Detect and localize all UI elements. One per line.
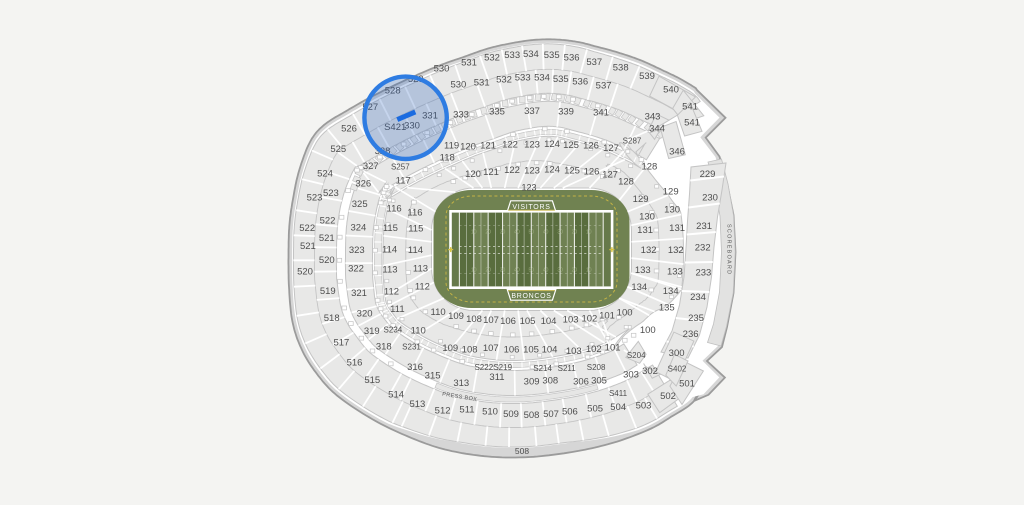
svg-text:522: 522 [299, 223, 315, 234]
svg-text:316: 316 [407, 362, 423, 373]
svg-text:300: 300 [669, 348, 685, 359]
svg-text:103: 103 [563, 315, 579, 326]
svg-text:20: 20 [485, 230, 491, 236]
svg-text:120: 120 [465, 169, 481, 180]
svg-text:515: 515 [364, 375, 380, 386]
svg-text:135: 135 [659, 302, 675, 313]
svg-text:534: 534 [523, 49, 539, 60]
svg-text:S411: S411 [609, 389, 628, 398]
svg-text:530: 530 [450, 79, 466, 90]
svg-text:121: 121 [480, 140, 496, 151]
svg-text:123: 123 [524, 165, 540, 176]
svg-text:106: 106 [504, 344, 520, 355]
svg-text:20: 20 [572, 268, 578, 274]
svg-text:131: 131 [637, 225, 653, 236]
svg-text:103: 103 [566, 346, 582, 357]
svg-text:133: 133 [667, 267, 683, 278]
svg-text:10: 10 [586, 268, 592, 274]
svg-text:521: 521 [300, 241, 316, 252]
svg-text:S402: S402 [668, 364, 687, 373]
svg-text:302: 302 [642, 366, 658, 377]
svg-text:536: 536 [572, 77, 588, 88]
svg-text:231: 231 [696, 221, 712, 232]
svg-text:306: 306 [573, 376, 589, 387]
svg-text:127: 127 [602, 169, 618, 180]
svg-text:S222: S222 [474, 363, 493, 372]
svg-text:40: 40 [543, 268, 549, 274]
svg-text:319: 319 [364, 326, 380, 337]
svg-text:541: 541 [682, 101, 698, 112]
svg-text:S257: S257 [391, 163, 410, 172]
svg-text:508: 508 [524, 410, 540, 421]
svg-text:131: 131 [669, 223, 685, 234]
svg-text:126: 126 [583, 140, 599, 151]
svg-text:509: 509 [503, 409, 519, 420]
svg-text:510: 510 [482, 407, 498, 418]
svg-text:121: 121 [483, 167, 499, 178]
svg-text:S287: S287 [623, 136, 642, 145]
svg-text:506: 506 [562, 407, 578, 418]
svg-text:537: 537 [586, 57, 602, 68]
svg-text:115: 115 [408, 224, 423, 235]
svg-text:112: 112 [384, 287, 399, 298]
svg-text:122: 122 [502, 139, 518, 150]
svg-text:S231: S231 [402, 343, 421, 352]
svg-text:517: 517 [333, 337, 349, 348]
svg-text:40: 40 [543, 230, 549, 236]
svg-text:114: 114 [408, 245, 423, 256]
svg-text:503: 503 [636, 400, 652, 411]
svg-text:311: 311 [489, 372, 504, 383]
svg-text:501: 501 [679, 378, 695, 389]
svg-text:107: 107 [483, 315, 499, 326]
svg-text:520: 520 [319, 255, 335, 266]
svg-text:123: 123 [524, 139, 540, 150]
svg-text:532: 532 [484, 52, 500, 63]
svg-text:117: 117 [396, 176, 411, 187]
svg-text:525: 525 [330, 144, 346, 155]
svg-text:S214: S214 [533, 364, 552, 373]
svg-text:321: 321 [351, 288, 367, 299]
svg-text:20: 20 [485, 268, 491, 274]
svg-text:508: 508 [515, 446, 529, 456]
svg-text:109: 109 [448, 311, 464, 322]
svg-text:232: 232 [695, 243, 711, 254]
svg-text:130: 130 [639, 212, 655, 223]
svg-text:10: 10 [471, 230, 477, 236]
svg-text:VISITORS: VISITORS [512, 204, 550, 211]
svg-text:531: 531 [461, 57, 477, 68]
svg-text:113: 113 [413, 263, 428, 274]
svg-text:133: 133 [635, 265, 651, 276]
svg-text:511: 511 [459, 405, 474, 416]
svg-text:530: 530 [434, 63, 450, 74]
svg-text:341: 341 [593, 107, 609, 118]
svg-text:101: 101 [599, 310, 615, 321]
svg-text:107: 107 [483, 343, 499, 354]
svg-text:344: 344 [649, 123, 665, 134]
svg-text:127: 127 [603, 143, 619, 154]
svg-text:323: 323 [349, 245, 365, 256]
svg-text:234: 234 [690, 292, 706, 303]
svg-text:129: 129 [633, 194, 649, 205]
svg-text:324: 324 [350, 223, 366, 234]
svg-text:111: 111 [390, 304, 404, 315]
svg-text:10: 10 [471, 268, 477, 274]
svg-text:313: 313 [453, 378, 469, 389]
svg-text:134: 134 [663, 286, 679, 297]
svg-text:100: 100 [617, 307, 633, 318]
svg-text:337: 337 [524, 106, 540, 117]
svg-text:523: 523 [323, 188, 339, 199]
svg-text:343: 343 [645, 111, 661, 122]
svg-text:518: 518 [324, 313, 340, 324]
svg-text:535: 535 [553, 74, 569, 85]
svg-text:120: 120 [460, 141, 476, 152]
svg-text:533: 533 [515, 73, 531, 84]
svg-text:134: 134 [631, 282, 647, 293]
svg-text:113: 113 [382, 264, 397, 275]
svg-text:533: 533 [504, 50, 520, 61]
svg-text:30: 30 [500, 268, 506, 274]
svg-text:541: 541 [684, 117, 700, 128]
svg-text:116: 116 [387, 204, 402, 215]
svg-text:539: 539 [639, 71, 655, 82]
svg-text:20: 20 [572, 230, 578, 236]
svg-text:333: 333 [453, 109, 469, 120]
svg-text:504: 504 [610, 402, 626, 413]
svg-text:536: 536 [564, 52, 580, 63]
svg-text:132: 132 [641, 245, 657, 256]
svg-text:512: 512 [435, 406, 451, 417]
svg-text:522: 522 [320, 215, 336, 226]
svg-text:102: 102 [586, 344, 602, 355]
svg-text:116: 116 [407, 208, 422, 219]
svg-text:112: 112 [415, 281, 430, 292]
svg-text:130: 130 [664, 204, 680, 215]
svg-text:236: 236 [683, 329, 699, 340]
svg-text:526: 526 [341, 123, 357, 134]
svg-text:502: 502 [660, 391, 676, 402]
svg-text:322: 322 [348, 263, 364, 274]
svg-text:110: 110 [431, 307, 446, 318]
svg-text:516: 516 [347, 358, 363, 369]
svg-text:233: 233 [695, 267, 711, 278]
svg-text:128: 128 [618, 176, 634, 187]
svg-text:10: 10 [586, 230, 592, 236]
svg-text:320: 320 [357, 309, 373, 320]
svg-text:309: 309 [524, 377, 540, 388]
svg-text:514: 514 [388, 390, 404, 401]
svg-text:108: 108 [462, 344, 478, 355]
svg-text:124: 124 [544, 139, 560, 150]
svg-text:30: 30 [557, 230, 563, 236]
svg-text:BRONCOS: BRONCOS [511, 293, 551, 300]
svg-text:50: 50 [529, 268, 535, 274]
svg-text:108: 108 [466, 314, 482, 325]
svg-text:505: 505 [587, 404, 603, 415]
svg-text:122: 122 [504, 165, 520, 176]
svg-text:229: 229 [700, 169, 716, 180]
svg-text:318: 318 [376, 342, 392, 353]
svg-text:339: 339 [558, 106, 574, 117]
svg-text:335: 335 [489, 106, 505, 117]
svg-text:S211: S211 [558, 364, 577, 373]
svg-text:308: 308 [542, 375, 558, 386]
svg-text:235: 235 [688, 313, 704, 324]
svg-text:532: 532 [496, 74, 512, 85]
svg-text:513: 513 [409, 399, 425, 410]
svg-text:104: 104 [541, 316, 557, 327]
svg-text:519: 519 [320, 286, 336, 297]
svg-text:534: 534 [534, 73, 550, 84]
svg-text:521: 521 [319, 233, 335, 244]
svg-text:531: 531 [474, 77, 490, 88]
svg-text:110: 110 [411, 326, 426, 337]
svg-text:100: 100 [640, 325, 656, 336]
svg-text:129: 129 [663, 187, 679, 198]
svg-text:305: 305 [591, 375, 607, 386]
svg-text:540: 540 [663, 84, 679, 95]
svg-text:30: 30 [557, 268, 563, 274]
svg-text:346: 346 [669, 146, 685, 157]
svg-text:118: 118 [440, 153, 455, 164]
svg-text:327: 327 [363, 161, 379, 172]
svg-text:132: 132 [668, 245, 684, 256]
svg-text:40: 40 [514, 268, 520, 274]
svg-text:126: 126 [584, 166, 600, 177]
svg-text:537: 537 [596, 80, 612, 91]
svg-text:119: 119 [444, 140, 459, 151]
svg-text:SCOREBOARD: SCOREBOARD [726, 224, 732, 275]
svg-text:507: 507 [543, 409, 559, 420]
svg-text:520: 520 [297, 266, 313, 277]
svg-text:104: 104 [542, 344, 558, 355]
svg-text:123: 123 [521, 182, 536, 192]
svg-text:102: 102 [581, 314, 597, 325]
svg-text:230: 230 [702, 192, 718, 203]
svg-text:40: 40 [514, 230, 520, 236]
svg-text:125: 125 [563, 140, 579, 151]
svg-text:114: 114 [382, 244, 397, 255]
svg-text:101: 101 [605, 343, 621, 354]
svg-text:535: 535 [544, 50, 560, 61]
svg-text:115: 115 [383, 223, 398, 234]
svg-text:303: 303 [623, 369, 639, 380]
svg-text:128: 128 [641, 161, 657, 172]
svg-text:30: 30 [500, 230, 506, 236]
svg-text:109: 109 [442, 343, 458, 354]
svg-text:S204: S204 [627, 351, 646, 360]
svg-text:105: 105 [520, 316, 536, 327]
svg-text:S208: S208 [587, 363, 606, 372]
svg-text:50: 50 [529, 230, 535, 236]
svg-text:S219: S219 [493, 363, 512, 372]
svg-text:124: 124 [544, 164, 560, 175]
svg-text:326: 326 [355, 178, 371, 189]
svg-text:315: 315 [425, 370, 441, 381]
svg-text:538: 538 [613, 63, 629, 74]
svg-text:524: 524 [317, 168, 333, 179]
svg-text:125: 125 [564, 165, 580, 176]
svg-text:523: 523 [307, 193, 323, 204]
svg-text:325: 325 [352, 199, 368, 210]
svg-text:106: 106 [500, 316, 516, 327]
svg-text:S234: S234 [384, 326, 403, 335]
svg-text:105: 105 [523, 344, 539, 355]
